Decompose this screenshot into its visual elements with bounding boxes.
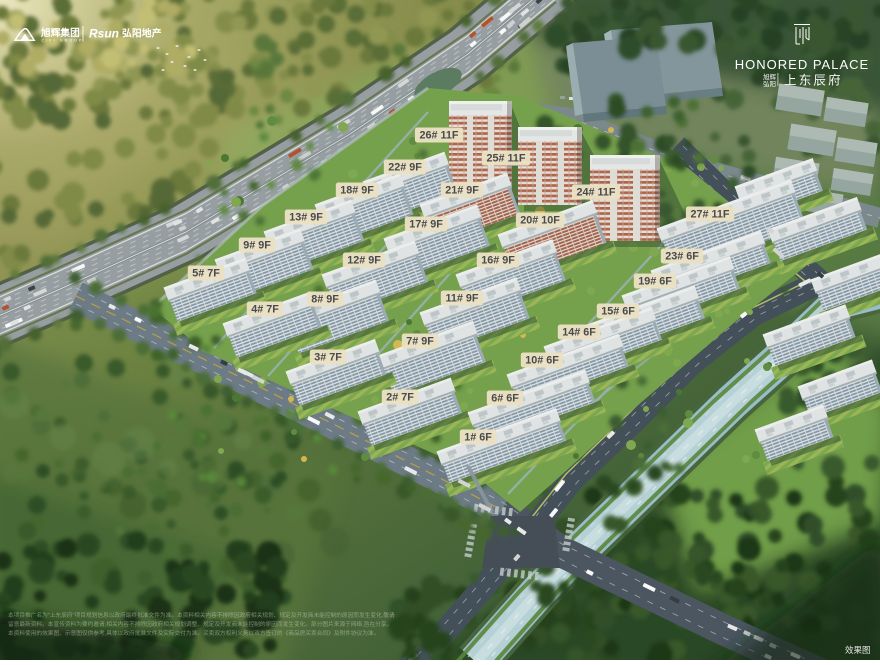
svg-text:效果图: 效果图 — [845, 645, 871, 655]
svg-text:本资料使用的效果图、示意图仅供参考,具体以政府批准文件及实际: 本资料使用的效果图、示意图仅供参考,具体以政府批准文件及实际交付为准。买卖双方权… — [8, 629, 379, 637]
svg-text:本项目推广名为"上东辰府"项目规划信息以政府最终批准文件为准: 本项目推广名为"上东辰府"项目规划信息以政府最终批准文件为准。本资料相关内容不排… — [8, 611, 395, 619]
svg-text:弘阳: 弘阳 — [763, 79, 776, 88]
svg-text:弘阳地产: 弘阳地产 — [122, 27, 162, 40]
svg-text:HONORED PALACE: HONORED PALACE — [735, 57, 869, 72]
svg-text:Rsun: Rsun — [89, 27, 119, 41]
svg-text:旭辉集团: 旭辉集团 — [40, 27, 80, 39]
svg-text:留意最新资料。本宣传资料为要约邀请,相关内容不排除因政府相关: 留意最新资料。本宣传资料为要约邀请,相关内容不排除因政府相关规划调整、规定及开发… — [8, 620, 392, 628]
svg-text:旭辉: 旭辉 — [763, 72, 777, 81]
svg-text:上东辰府: 上东辰府 — [784, 73, 843, 88]
svg-text:CIFI GROUP: CIFI GROUP — [42, 39, 84, 43]
